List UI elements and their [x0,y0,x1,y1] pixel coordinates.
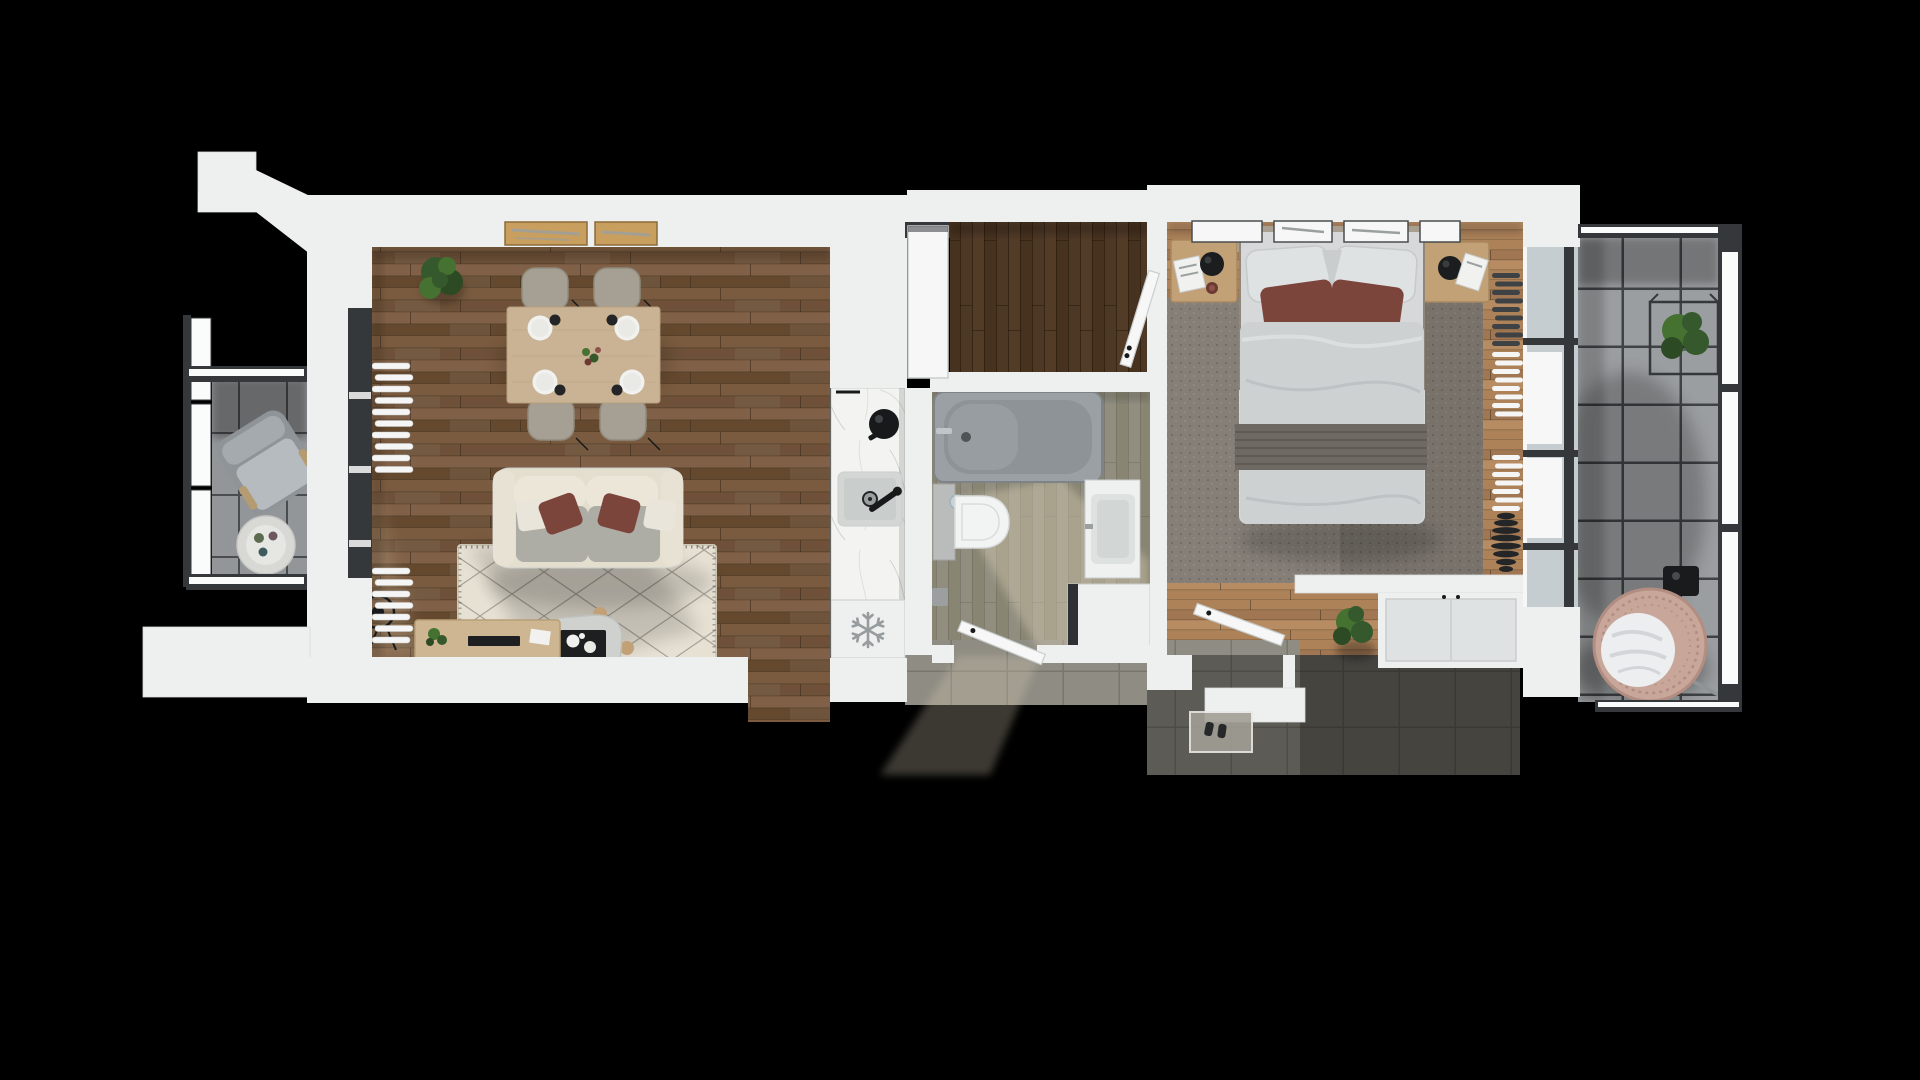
wall-bathroom-right [1150,388,1167,655]
wall-top-hall [907,190,1147,222]
wall-art-living [505,222,657,245]
round-side-table [237,516,295,574]
floor-plan-svg [0,0,1920,1080]
bathtub [934,392,1102,482]
sofa [488,468,712,608]
doormat [1190,712,1252,752]
nightstand-right [1423,242,1489,302]
vanity-faucet [1085,524,1093,529]
wall-frames-bedroom [1192,221,1460,242]
entry-hall-floor [950,222,1147,387]
wall-bedroom-bottom-stub-right [1283,655,1295,690]
sideboard [415,620,560,660]
duvet [1240,322,1424,524]
wall-bath-bottom-stub-right [1037,645,1150,663]
balcony-left-window [348,308,372,578]
tub-faucet [936,428,952,434]
kitchen-unit [831,388,905,658]
bathroom-bin [932,588,948,606]
wall-bottom [307,657,748,703]
wall-right-top-corner [1523,185,1580,247]
wall-right-lower [1523,607,1580,697]
nightstand-left [1171,240,1237,302]
entry-door-leaf [908,226,948,378]
radiator-living-lower [372,568,413,643]
wall-bathroom-top [930,372,1155,392]
wall-bath-bottom-stub-left [932,645,954,663]
bedroom-balcony-window [1523,247,1578,607]
wall-kitchen-end-panel [830,658,907,702]
wall-bottom-left-slab [143,627,310,697]
white-pillow [643,498,678,533]
freezer-cabinet [831,600,905,658]
tub-drain [961,432,971,442]
kitchen-sink [838,472,904,526]
wall-top-bedroom [1147,185,1530,222]
radiator-bedroom-dark [1492,273,1523,346]
media-device [468,636,520,646]
double-bed [1235,226,1427,524]
floor-plan-stage [0,0,1920,1080]
wall-bedroom-bottom-stub-left [1147,655,1192,690]
vanity-sink [1085,480,1140,578]
bedside-lamp [1200,252,1224,276]
washing-machine [1068,584,1150,652]
wall-kitchen-bathroom [905,388,932,655]
wall-kitchen-block [830,195,907,388]
